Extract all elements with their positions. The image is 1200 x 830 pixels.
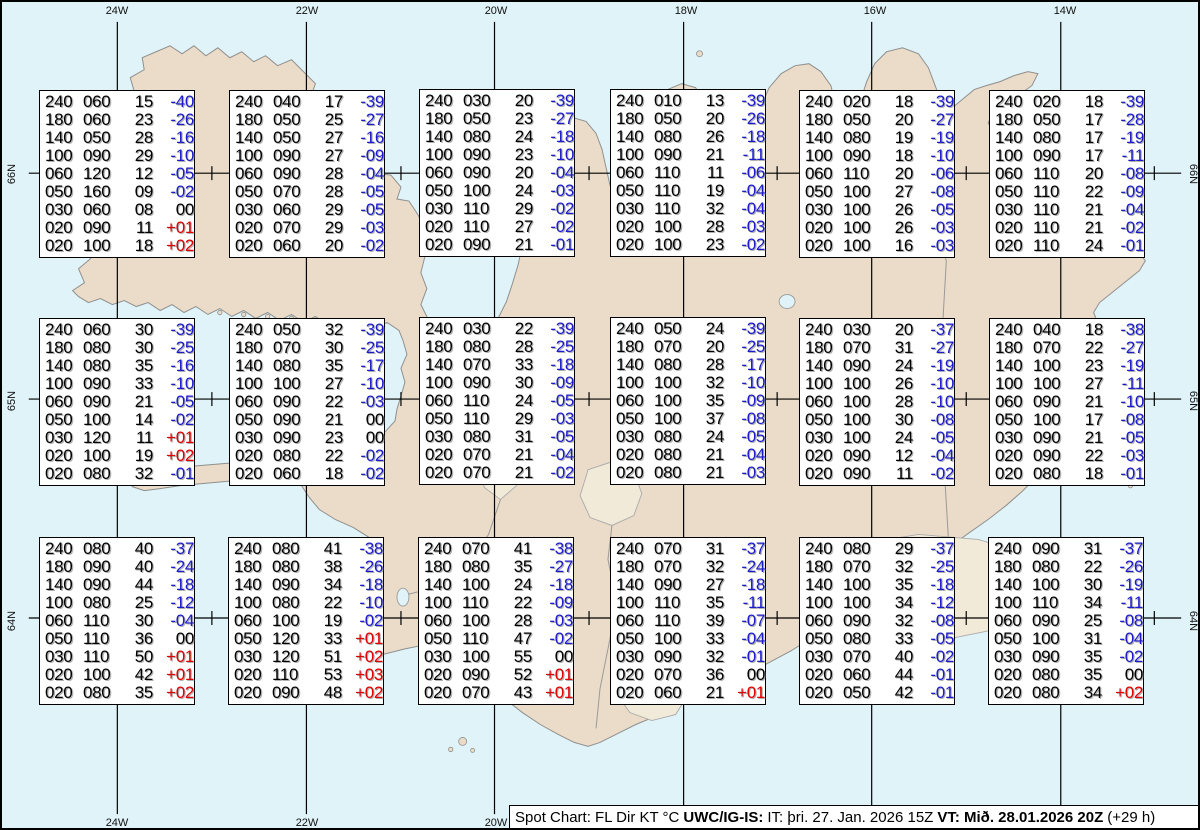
- station-row: 05011047-02: [424, 630, 570, 648]
- station-row: 02007021-02: [425, 464, 571, 482]
- fl-value: 020: [235, 237, 273, 255]
- fl-value: 180: [616, 558, 654, 576]
- station-row: 02008018-01: [995, 465, 1141, 483]
- fl-value: 020: [616, 684, 654, 702]
- fl-value: 180: [234, 558, 272, 576]
- station-row: 06009021-05: [45, 393, 191, 411]
- station-row: 02010028-03: [616, 218, 762, 236]
- station-row: 10011022-09: [424, 594, 570, 612]
- fl-value: 060: [45, 165, 83, 183]
- station-row: 06009032-08: [805, 612, 951, 630]
- dir-value: 100: [843, 219, 885, 237]
- temp-value: -04: [913, 447, 954, 465]
- station-row: 05010017-08: [995, 411, 1141, 429]
- station-row: 18007022-27: [995, 339, 1141, 357]
- fl-value: 030: [616, 200, 654, 218]
- kt-value: 51: [314, 648, 342, 666]
- temp-value: +02: [153, 447, 194, 465]
- dir-value: 050: [273, 321, 315, 339]
- fl-value: 020: [234, 684, 272, 702]
- temp-value: -09: [343, 147, 384, 165]
- kt-value: 28: [696, 218, 724, 236]
- station-row: 10010032-10: [616, 374, 762, 392]
- kt-value: 29: [885, 540, 913, 558]
- kt-value: 17: [315, 93, 343, 111]
- dir-value: 060: [83, 201, 125, 219]
- dir-value: 090: [1033, 429, 1075, 447]
- kt-value: 33: [696, 630, 724, 648]
- kt-value: 35: [696, 594, 724, 612]
- dir-value: 070: [273, 219, 315, 237]
- fl-value: 140: [616, 576, 654, 594]
- fl-value: 020: [616, 446, 654, 464]
- temp-value: -04: [343, 165, 384, 183]
- fl-value: 030: [805, 648, 843, 666]
- kt-value: 21: [1075, 393, 1103, 411]
- station-row: 02009052+01: [424, 666, 570, 684]
- kt-value: 20: [885, 321, 913, 339]
- station-box: 24005032-3918007030-2514008035-171001002…: [229, 318, 385, 486]
- temp-value: -01: [153, 465, 194, 483]
- dir-value: 100: [462, 576, 504, 594]
- station-row: 02008035+02: [45, 684, 191, 702]
- station-row: 02005042-01: [805, 684, 951, 702]
- station-row: 06010028-10: [805, 393, 951, 411]
- kt-value: 27: [1075, 375, 1103, 393]
- temp-value: -05: [343, 183, 384, 201]
- kt-value: 21: [696, 464, 724, 482]
- fl-value: 020: [805, 666, 843, 684]
- fl-value: 030: [425, 428, 463, 446]
- temp-value: -10: [342, 594, 383, 612]
- dir-value: 090: [83, 558, 125, 576]
- temp-value: -05: [343, 201, 384, 219]
- station-row: 06009028-04: [235, 165, 381, 183]
- fl-value: 060: [424, 612, 462, 630]
- dir-value: 080: [463, 338, 505, 356]
- kt-value: 16: [885, 237, 913, 255]
- dir-value: 100: [1032, 576, 1074, 594]
- dir-value: 110: [1033, 237, 1075, 255]
- latitude-label: 66N: [6, 164, 18, 184]
- fl-value: 030: [805, 429, 843, 447]
- dir-value: 120: [83, 429, 125, 447]
- kt-value: 44: [125, 576, 153, 594]
- kt-value: 50: [125, 648, 153, 666]
- kt-value: 18: [125, 237, 153, 255]
- temp-value: -02: [533, 464, 574, 482]
- station-row: 24007041-38: [424, 540, 570, 558]
- valid-time-label: VT: Mið. 28.01.2026 20Z: [937, 809, 1103, 826]
- temp-value: -28: [1103, 111, 1144, 129]
- kt-value: 27: [696, 576, 724, 594]
- fl-value: 030: [616, 428, 654, 446]
- fl-value: 020: [616, 666, 654, 684]
- dir-value: 100: [83, 666, 125, 684]
- kt-value: 22: [505, 320, 533, 338]
- kt-value: 12: [885, 447, 913, 465]
- kt-value: 20: [505, 92, 533, 110]
- dir-value: 100: [843, 576, 885, 594]
- station-row: 10010027-11: [995, 375, 1141, 393]
- station-row: 03011029-02: [425, 200, 571, 218]
- kt-value: 24: [696, 320, 724, 338]
- fl-value: 020: [805, 447, 843, 465]
- station-row: 24008041-38: [234, 540, 380, 558]
- station-row: 03011021-04: [995, 201, 1141, 219]
- dir-value: 100: [462, 612, 504, 630]
- fl-value: 050: [616, 630, 654, 648]
- temp-value: -39: [533, 92, 574, 110]
- kt-value: 22: [1075, 447, 1103, 465]
- kt-value: 24: [505, 128, 533, 146]
- kt-value: 31: [696, 540, 724, 558]
- station-box: 24008040-3718009040-2414009044-181000802…: [39, 537, 195, 705]
- fl-value: 020: [235, 219, 273, 237]
- fl-value: 020: [45, 237, 83, 255]
- temp-value: -19: [1103, 357, 1144, 375]
- station-box: 24006030-3918008030-2514008035-161000903…: [39, 318, 195, 486]
- station-row: 14008017-19: [995, 129, 1141, 147]
- fl-value: 050: [235, 411, 273, 429]
- dir-value: 050: [273, 111, 315, 129]
- fl-value: 020: [994, 684, 1032, 702]
- station-row: 18008038-26: [234, 558, 380, 576]
- fl-value: 060: [616, 392, 654, 410]
- kt-value: 28: [504, 612, 532, 630]
- temp-value: -02: [533, 218, 574, 236]
- dir-value: 110: [463, 410, 505, 428]
- kt-value: 29: [505, 200, 533, 218]
- station-row: 05011022-09: [995, 183, 1141, 201]
- dir-value: 010: [654, 92, 696, 110]
- dir-value: 090: [654, 146, 696, 164]
- station-box: 24006015-4018006023-2614005028-161000902…: [39, 90, 195, 258]
- kt-value: 23: [505, 146, 533, 164]
- kt-value: 13: [696, 92, 724, 110]
- station-row: 24006015-40: [45, 93, 191, 111]
- kt-value: 20: [505, 164, 533, 182]
- station-row: 02006044-01: [805, 666, 951, 684]
- dir-value: 060: [843, 666, 885, 684]
- temp-value: -11: [724, 594, 765, 612]
- station-row: 10009017-11: [995, 147, 1141, 165]
- dir-value: 090: [83, 576, 125, 594]
- fl-value: 100: [235, 375, 273, 393]
- temp-value: -03: [343, 219, 384, 237]
- temp-value: -05: [1103, 429, 1144, 447]
- temp-value: -39: [724, 320, 765, 338]
- dir-value: 080: [83, 339, 125, 357]
- dir-value: 050: [83, 129, 125, 147]
- temp-value: -04: [1102, 630, 1143, 648]
- dir-value: 160: [83, 183, 125, 201]
- dir-value: 100: [843, 183, 885, 201]
- temp-value: +02: [153, 237, 194, 255]
- station-row: 10009027-09: [235, 147, 381, 165]
- temp-value: -04: [724, 182, 765, 200]
- station-row: 10011035-11: [616, 594, 762, 612]
- fl-value: 030: [45, 201, 83, 219]
- fl-value: 030: [235, 429, 273, 447]
- dir-value: 090: [83, 147, 125, 165]
- dir-value: 100: [83, 411, 125, 429]
- dir-value: 080: [843, 129, 885, 147]
- station-row: 18007032-25: [805, 558, 951, 576]
- kt-value: 43: [504, 684, 532, 702]
- fl-value: 100: [616, 594, 654, 612]
- dir-value: 080: [1032, 558, 1074, 576]
- fl-value: 240: [616, 92, 654, 110]
- temp-value: 00: [153, 201, 194, 219]
- station-row: 06010035-09: [616, 392, 762, 410]
- dir-value: 060: [83, 93, 125, 111]
- kt-value: 34: [1074, 594, 1102, 612]
- dir-value: 100: [273, 375, 315, 393]
- kt-value: 18: [885, 147, 913, 165]
- longitude-label: 22W: [296, 5, 319, 17]
- station-box: 24003020-3718007031-2714009024-191001002…: [799, 318, 955, 486]
- station-box: 24001013-3918005020-2614008026-181000902…: [610, 89, 766, 257]
- station-row: 02008034+02: [994, 684, 1140, 702]
- dir-value: 090: [843, 612, 885, 630]
- kt-value: 20: [315, 237, 343, 255]
- kt-value: 33: [505, 356, 533, 374]
- station-row: 05010014-02: [45, 411, 191, 429]
- kt-value: 18: [1075, 321, 1103, 339]
- dir-value: 090: [843, 357, 885, 375]
- station-row: 03012011+01: [45, 429, 191, 447]
- station-row: 06009020-04: [425, 164, 571, 182]
- station-row: 05010024-03: [425, 182, 571, 200]
- temp-value: -05: [913, 201, 954, 219]
- kt-value: 28: [696, 356, 724, 374]
- station-row: 10010034-12: [805, 594, 951, 612]
- dir-value: 110: [654, 164, 696, 182]
- fl-value: 100: [805, 375, 843, 393]
- dir-value: 100: [463, 182, 505, 200]
- kt-value: 28: [315, 165, 343, 183]
- station-row: 06011011-06: [616, 164, 762, 182]
- kt-value: 15: [125, 93, 153, 111]
- dir-value: 080: [273, 357, 315, 375]
- fl-value: 140: [995, 129, 1033, 147]
- station-box: 24008029-3718007032-2514010035-181001003…: [799, 537, 955, 705]
- fl-value: 020: [995, 465, 1033, 483]
- kt-value: 24: [885, 357, 913, 375]
- temp-value: -01: [1103, 237, 1144, 255]
- fl-value: 020: [616, 464, 654, 482]
- station-row: 06011020-08: [995, 165, 1141, 183]
- kt-value: 23: [125, 111, 153, 129]
- temp-value: -04: [724, 630, 765, 648]
- dir-value: 110: [463, 392, 505, 410]
- temp-value: -26: [1102, 558, 1143, 576]
- temp-value: -18: [342, 576, 383, 594]
- kt-value: 29: [125, 147, 153, 165]
- kt-value: 19: [885, 129, 913, 147]
- kt-value: 53: [314, 666, 342, 684]
- fl-value: 180: [995, 111, 1033, 129]
- temp-value: -04: [1103, 201, 1144, 219]
- dir-value: 100: [83, 237, 125, 255]
- temp-value: -26: [153, 111, 194, 129]
- fl-value: 020: [234, 666, 272, 684]
- dir-value: 110: [1032, 594, 1074, 612]
- longitude-label: 24W: [106, 817, 129, 829]
- fl-value: 240: [45, 321, 83, 339]
- station-row: 02009048+02: [234, 684, 380, 702]
- dir-value: 050: [273, 129, 315, 147]
- station-row: 06012012-05: [45, 165, 191, 183]
- temp-value: -27: [1103, 339, 1144, 357]
- temp-value: -03: [532, 612, 573, 630]
- temp-value: -25: [533, 338, 574, 356]
- kt-value: 25: [1074, 612, 1102, 630]
- dir-value: 120: [272, 648, 314, 666]
- kt-value: 30: [1074, 576, 1102, 594]
- dir-value: 100: [1033, 357, 1075, 375]
- temp-value: -02: [913, 465, 954, 483]
- station-row: 24003022-39: [425, 320, 571, 338]
- kt-value: 32: [696, 200, 724, 218]
- fl-value: 240: [995, 93, 1033, 111]
- dir-value: 080: [843, 630, 885, 648]
- dir-value: 080: [463, 128, 505, 146]
- dir-value: 090: [1033, 147, 1075, 165]
- dir-value: 100: [654, 392, 696, 410]
- station-row: 05010027-08: [805, 183, 951, 201]
- kt-value: 21: [505, 236, 533, 254]
- fl-value: 100: [425, 146, 463, 164]
- kt-value: 30: [315, 339, 343, 357]
- kt-value: 27: [315, 129, 343, 147]
- station-row: 0200803500: [994, 666, 1140, 684]
- kt-value: 17: [1075, 147, 1103, 165]
- fl-value: 100: [45, 375, 83, 393]
- kt-value: 21: [505, 464, 533, 482]
- station-box: 24002018-3918005017-2814008017-191000901…: [989, 90, 1145, 258]
- temp-value: -03: [533, 182, 574, 200]
- fl-value: 020: [425, 236, 463, 254]
- fl-value: 060: [45, 612, 83, 630]
- fl-value: 140: [234, 576, 272, 594]
- station-row: 14010035-18: [805, 576, 951, 594]
- temp-value: -26: [342, 558, 383, 576]
- station-row: 18005020-26: [616, 110, 762, 128]
- station-row: 10010026-10: [805, 375, 951, 393]
- kt-value: 09: [125, 183, 153, 201]
- kt-value: 30: [505, 374, 533, 392]
- temp-value: -04: [724, 200, 765, 218]
- dir-value: 050: [843, 684, 885, 702]
- kt-value: 17: [1075, 111, 1103, 129]
- station-row: 24007031-37: [616, 540, 762, 558]
- dir-value: 090: [83, 219, 125, 237]
- kt-value: 20: [885, 165, 913, 183]
- station-row: 18007020-25: [616, 338, 762, 356]
- dir-value: 020: [1033, 93, 1075, 111]
- station-row: 24004018-38: [995, 321, 1141, 339]
- temp-value: -19: [913, 129, 954, 147]
- fl-value: 030: [45, 648, 83, 666]
- longitude-label: 20W: [485, 817, 508, 829]
- fl-value: 180: [616, 110, 654, 128]
- dir-value: 050: [843, 111, 885, 129]
- fl-value: 060: [995, 393, 1033, 411]
- fl-value: 100: [234, 594, 272, 612]
- dir-value: 080: [272, 594, 314, 612]
- kt-value: 32: [885, 612, 913, 630]
- fl-value: 020: [45, 447, 83, 465]
- station-row: 03009035-02: [994, 648, 1140, 666]
- kt-value: 29: [505, 410, 533, 428]
- fl-value: 180: [994, 558, 1032, 576]
- fl-value: 180: [45, 111, 83, 129]
- station-box: 24007031-3718007032-2414009027-181001103…: [610, 537, 766, 705]
- temp-value: -27: [343, 111, 384, 129]
- dir-value: 080: [843, 540, 885, 558]
- station-row: 05011019-04: [616, 182, 762, 200]
- dir-value: 100: [1033, 411, 1075, 429]
- dir-value: 110: [462, 630, 504, 648]
- dir-value: 090: [83, 393, 125, 411]
- station-row: 24008040-37: [45, 540, 191, 558]
- station-box: 24005024-3918007020-2514008028-171001003…: [610, 317, 766, 485]
- fl-value: 180: [45, 558, 83, 576]
- station-row: 10009030-09: [425, 374, 571, 392]
- longitude-label: 16W: [864, 5, 887, 17]
- dir-value: 100: [1032, 630, 1074, 648]
- station-row: 03011050+01: [45, 648, 191, 666]
- station-row: 18007032-24: [616, 558, 762, 576]
- dir-value: 090: [273, 165, 315, 183]
- kt-value: 32: [885, 558, 913, 576]
- dir-value: 050: [463, 110, 505, 128]
- temp-value: +03: [342, 666, 383, 684]
- fl-value: 060: [235, 165, 273, 183]
- kt-value: 27: [885, 183, 913, 201]
- fl-value: 240: [425, 92, 463, 110]
- dir-value: 080: [462, 558, 504, 576]
- latitude-label: 64N: [6, 611, 18, 631]
- kt-value: 25: [315, 111, 343, 129]
- kt-value: 21: [696, 684, 724, 702]
- fl-value: 020: [424, 684, 462, 702]
- temp-value: +01: [724, 684, 765, 702]
- station-row: 18006023-26: [45, 111, 191, 129]
- temp-value: -10: [153, 375, 194, 393]
- station-row: 0300902300: [235, 429, 381, 447]
- temp-value: -01: [533, 236, 574, 254]
- kt-value: 34: [885, 594, 913, 612]
- temp-value: -02: [1103, 219, 1144, 237]
- kt-value: 19: [314, 612, 342, 630]
- fl-value: 020: [995, 219, 1033, 237]
- dir-value: 080: [83, 540, 125, 558]
- kt-value: 28: [315, 183, 343, 201]
- dir-value: 080: [83, 465, 125, 483]
- temp-value: -39: [1103, 93, 1144, 111]
- temp-value: -02: [343, 447, 384, 465]
- fl-value: 060: [616, 164, 654, 182]
- station-row: 18008035-27: [424, 558, 570, 576]
- temp-value: -18: [913, 576, 954, 594]
- kt-value: 38: [314, 558, 342, 576]
- station-box: 24004018-3818007022-2714010023-191001002…: [989, 318, 1145, 486]
- station-row: 03009021-05: [995, 429, 1141, 447]
- fl-value: 050: [45, 183, 83, 201]
